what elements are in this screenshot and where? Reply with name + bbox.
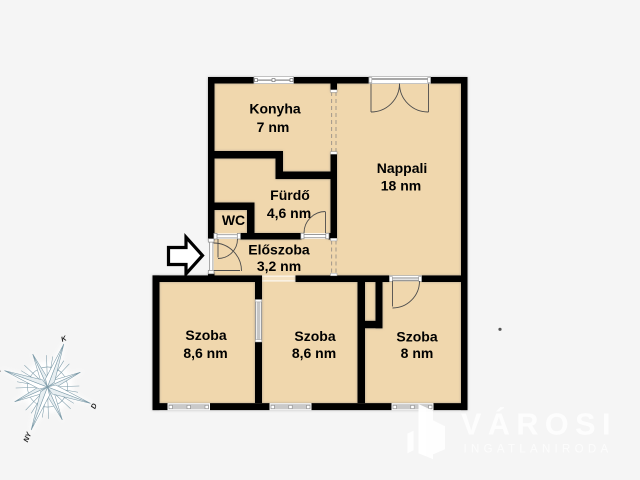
svg-text:3,2 nm: 3,2 nm [257,258,301,274]
svg-text:Konyha: Konyha [249,101,301,117]
svg-text:8 nm: 8 nm [401,345,434,361]
svg-text:18 nm: 18 nm [381,178,421,194]
svg-text:WC: WC [222,212,245,228]
svg-text:Fürdő: Fürdő [270,187,310,203]
svg-text:Nappali: Nappali [377,160,428,176]
svg-text:8,6 nm: 8,6 nm [183,345,227,361]
svg-text:VÁROSI: VÁROSI [461,407,617,442]
svg-text:INGATLANIRODA: INGATLANIRODA [464,444,613,456]
svg-text:Szoba: Szoba [294,328,335,344]
svg-text:Szoba: Szoba [185,327,226,343]
svg-text:4,6 nm: 4,6 nm [267,205,311,221]
svg-text:8,6 nm: 8,6 nm [292,345,336,361]
svg-text:7 nm: 7 nm [257,119,290,135]
svg-text:Szoba: Szoba [396,329,437,345]
svg-text:Előszoba: Előszoba [248,242,310,258]
